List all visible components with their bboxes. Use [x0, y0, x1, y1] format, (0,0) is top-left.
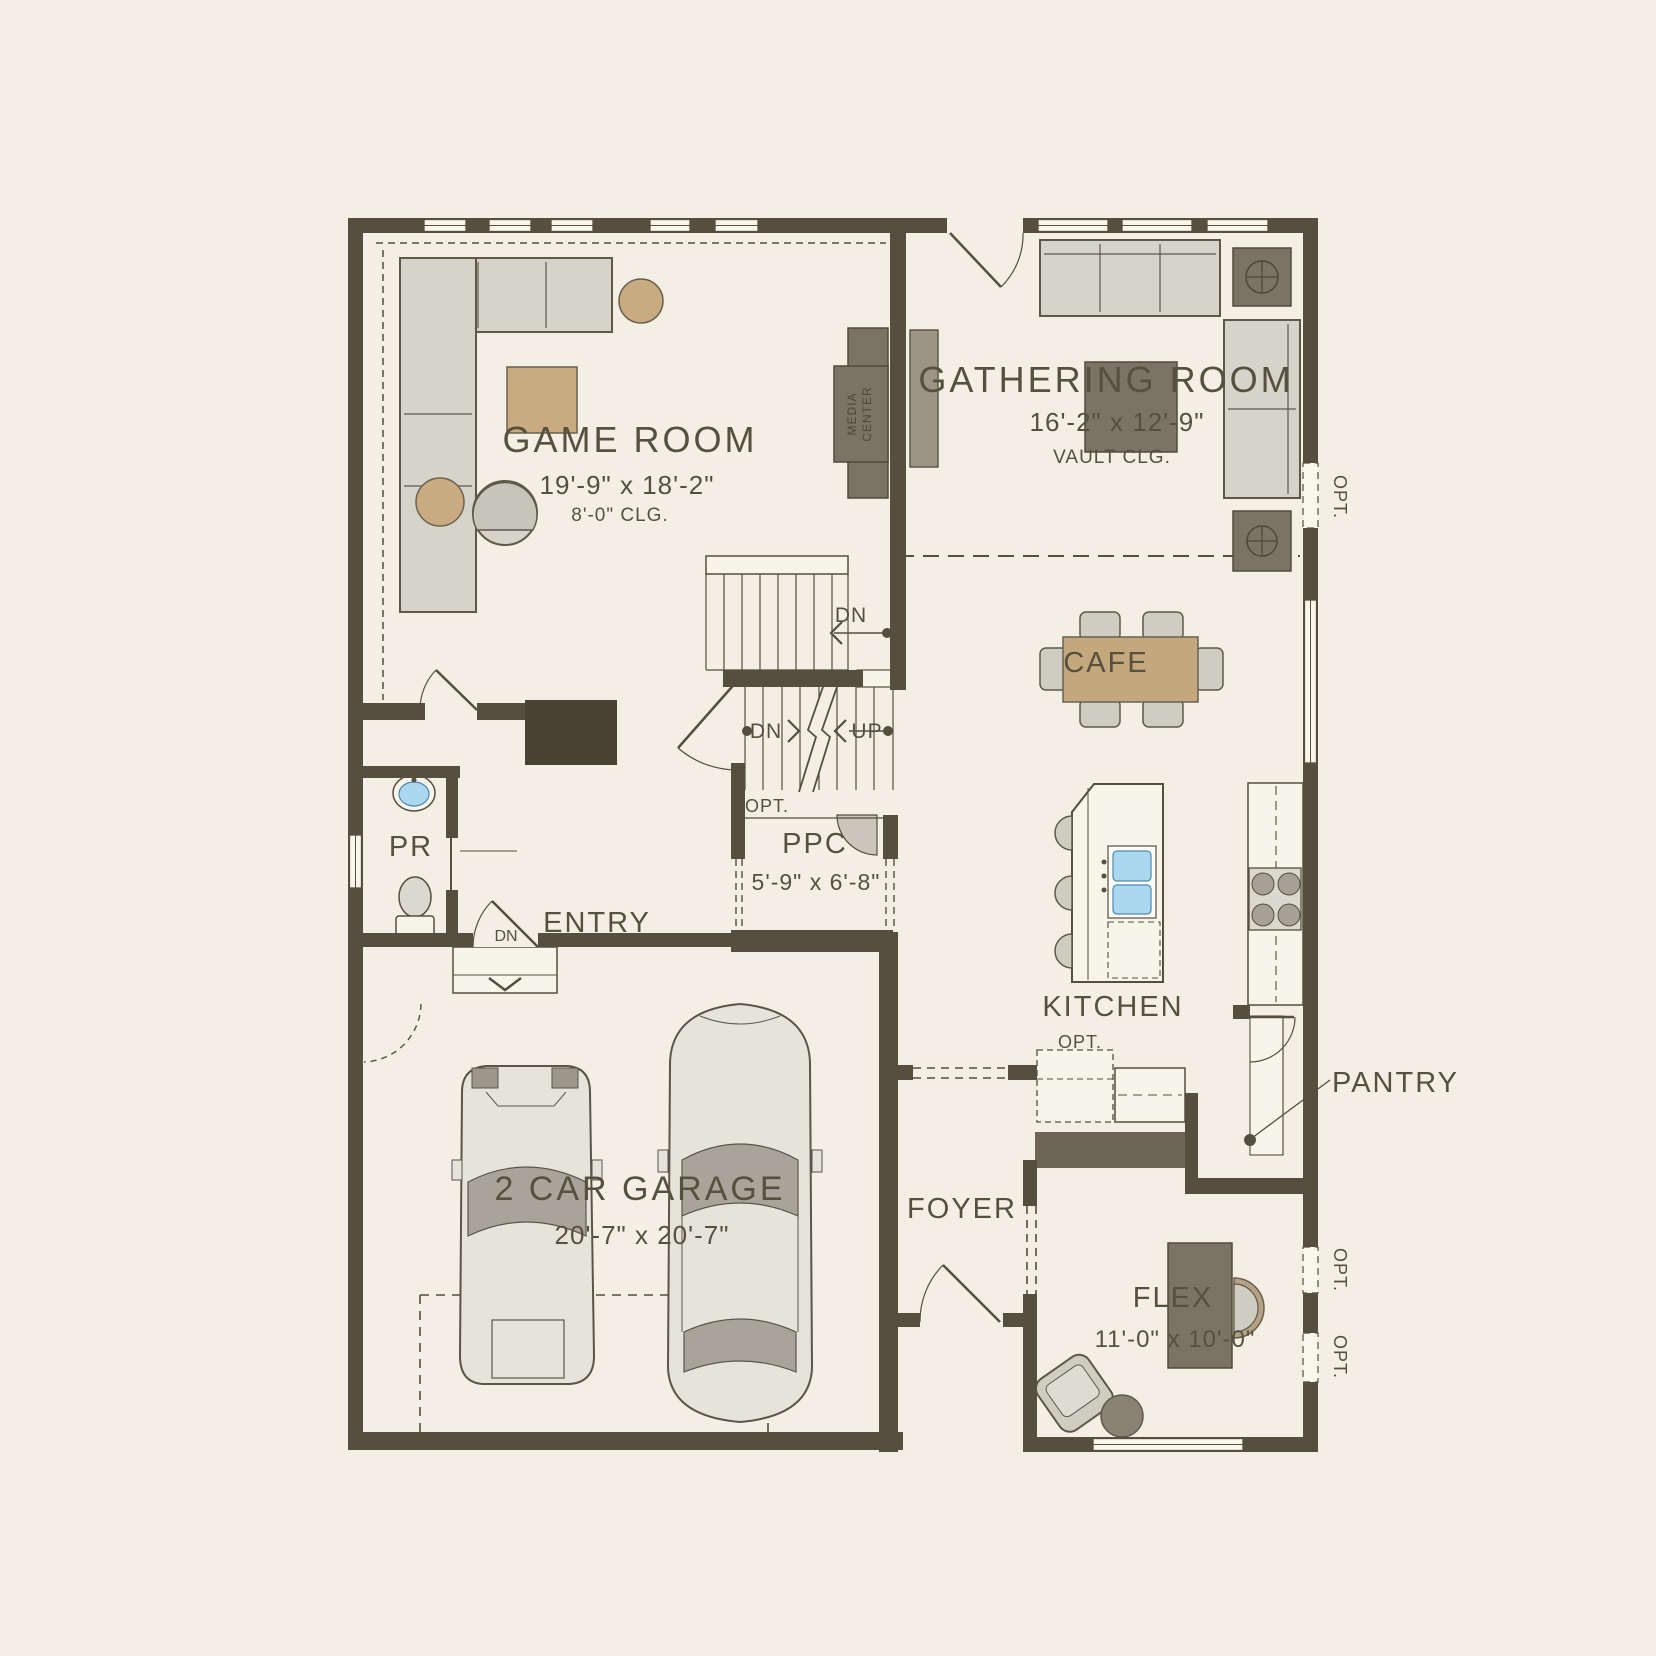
ppc-label: PPC — [782, 828, 848, 860]
ottoman — [1101, 1395, 1143, 1437]
ppc-opt-label: OPT. — [745, 796, 789, 816]
kitchen-island — [1072, 784, 1163, 982]
round-ottoman — [416, 478, 464, 526]
pantry-shelving — [1250, 1016, 1283, 1155]
gathering-room-label: GATHERING ROOM — [918, 359, 1293, 400]
kitchen-label: KITCHEN — [1042, 991, 1183, 1023]
car-right — [658, 1004, 822, 1422]
garage-dims: 20'-7" x 20'-7" — [555, 1220, 730, 1250]
stair-up-label: UP — [851, 720, 882, 743]
entry-label: ENTRY — [543, 907, 651, 939]
cafe-chair — [1195, 648, 1223, 690]
pr-label: PR — [389, 831, 433, 863]
flex-dims: 11'-0" x 10'-0" — [1095, 1326, 1256, 1353]
kitchen-counter-right — [1248, 783, 1303, 1005]
game-room-ceiling: 8'-0" CLG. — [571, 505, 668, 526]
flex-opt-label-2: OPT. — [1330, 1335, 1350, 1379]
garage-label: 2 CAR GARAGE — [494, 1170, 785, 1208]
optional-cabinets — [1037, 1050, 1113, 1122]
foyer-label: FOYER — [907, 1193, 1017, 1225]
cafe-chair — [1143, 612, 1183, 640]
kitchen-opt-label: OPT. — [1058, 1032, 1102, 1052]
game-room-label: GAME ROOM — [502, 419, 757, 460]
cafe-chair — [1080, 699, 1120, 727]
cafe-chair — [1080, 612, 1120, 640]
stair-dn-lower-label: DN — [750, 720, 782, 743]
media-center-label-line2: CENTER — [860, 386, 874, 441]
gathering-room-dims: 16'-2" x 12'-9" — [1030, 407, 1205, 437]
stair-dn-upper-label: DN — [835, 604, 867, 627]
toilet — [396, 877, 434, 937]
cafe-chair — [1143, 699, 1183, 727]
storage-block — [525, 700, 617, 765]
gathering-room-ceiling: VAULT CLG. — [1053, 447, 1171, 468]
island-stools — [1055, 816, 1072, 968]
game-room-dims: 19'-9" x 18'-2" — [540, 470, 715, 500]
flex-label: FLEX — [1133, 1282, 1214, 1314]
cafe-label: CAFE — [1063, 647, 1148, 679]
gathering-opt-label: OPT. — [1330, 475, 1350, 519]
floor-plan-page: MEDIA CENTER — [0, 0, 1656, 1656]
pedestal-sink — [393, 775, 435, 811]
swivel-chair — [473, 481, 537, 545]
sofa — [1040, 240, 1220, 316]
pantry-label: PANTRY — [1332, 1067, 1459, 1099]
side-table-with-lamp — [1233, 511, 1291, 571]
media-center-label-line1: MEDIA — [845, 392, 859, 435]
flex-opt-label-1: OPT. — [1330, 1248, 1350, 1292]
entry-dn-label: DN — [494, 928, 517, 945]
ppc-dims: 5'-9" x 6'-8" — [752, 869, 881, 895]
floor-plan-svg: MEDIA CENTER — [0, 0, 1656, 1656]
corner-table-with-lamp — [1233, 248, 1291, 306]
round-ottoman — [619, 279, 663, 323]
